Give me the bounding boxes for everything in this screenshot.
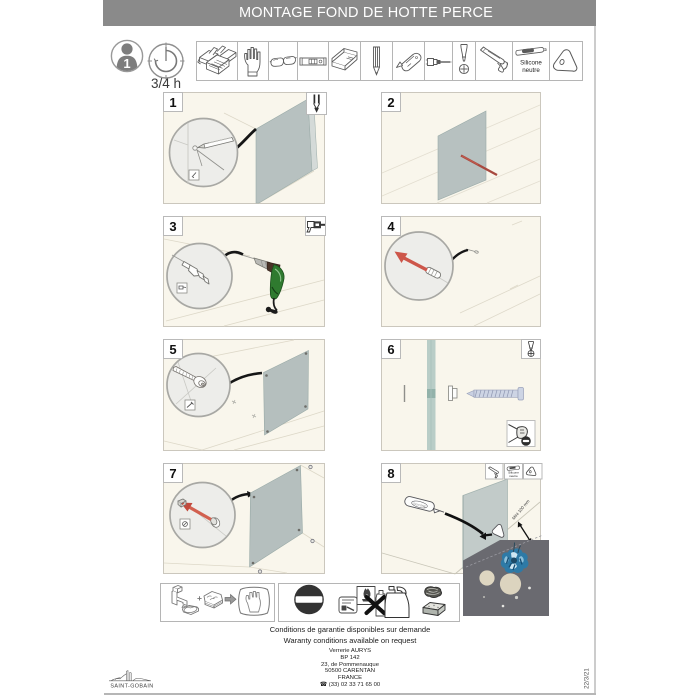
svg-text:neutre: neutre: [522, 67, 540, 74]
svg-text:Silicone: Silicone: [520, 60, 542, 67]
svg-text:SAINT-GOBAIN: SAINT-GOBAIN: [110, 684, 153, 690]
svg-text:Mini 100 mm: Mini 100 mm: [511, 498, 531, 520]
svg-text:neutre: neutre: [509, 474, 518, 478]
svg-text:1: 1: [123, 56, 130, 71]
svg-text:+: +: [197, 593, 202, 603]
